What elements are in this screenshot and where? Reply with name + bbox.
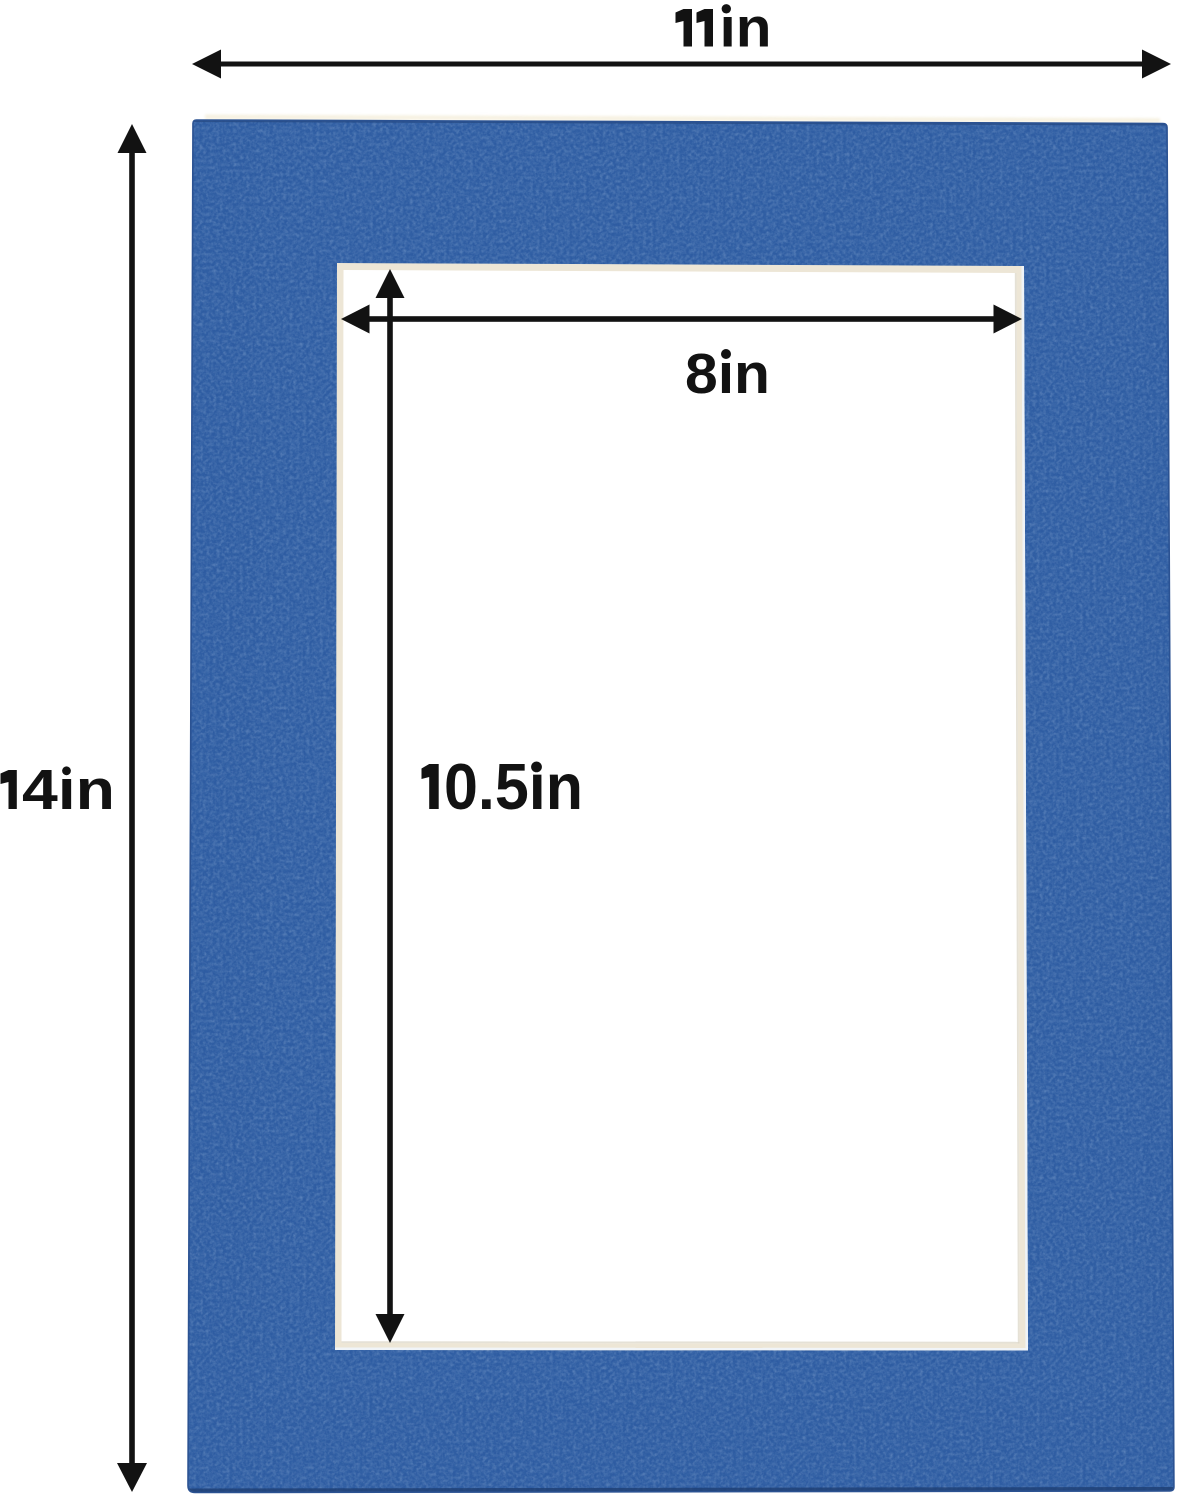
svg-text:0.5ın: 0.5ın	[444, 750, 583, 823]
